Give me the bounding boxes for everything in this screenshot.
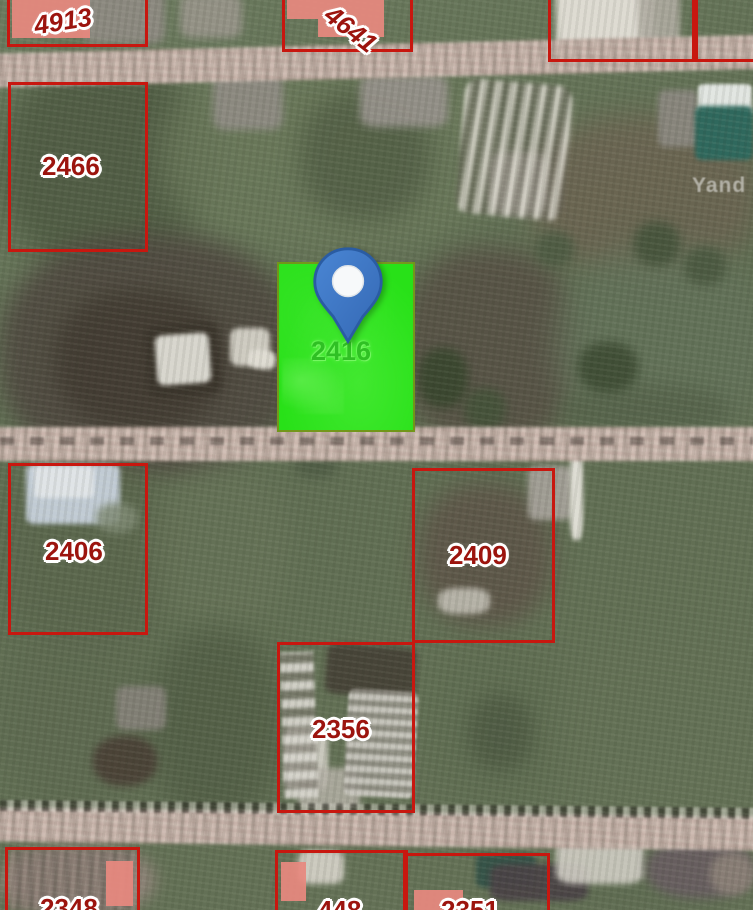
terrain-blob bbox=[150, 465, 290, 630]
parcel-label-2351: 2351 bbox=[441, 897, 499, 910]
terrain-blob bbox=[116, 686, 166, 730]
terrain-blob bbox=[180, 0, 242, 38]
terrain-blob bbox=[418, 348, 468, 408]
parcel-label-448: 448 bbox=[318, 897, 361, 910]
terrain-blob bbox=[154, 332, 211, 386]
terrain-blob bbox=[578, 342, 638, 392]
parcel-label-2466: 2466 bbox=[42, 153, 100, 179]
parcel-outline-top-right-2[interactable] bbox=[695, 0, 753, 62]
terrain-blob bbox=[710, 853, 753, 895]
parcel-label-2406: 2406 bbox=[45, 538, 103, 564]
terrain-blob bbox=[148, 628, 283, 823]
terrain-blob bbox=[93, 736, 157, 786]
terrain-blob bbox=[634, 222, 680, 266]
parcel-label-2348: 2348 bbox=[40, 895, 98, 910]
satellite-map[interactable]: Yand 49134641246624062409235623484482351… bbox=[0, 0, 753, 910]
location-pin-icon[interactable] bbox=[312, 247, 384, 344]
terrain-blob bbox=[658, 90, 698, 147]
highlight-scribble bbox=[282, 358, 344, 414]
parcel-label-2356: 2356 bbox=[312, 716, 370, 742]
parcel-fill-2348 bbox=[106, 861, 133, 906]
road-middle-tracks bbox=[0, 437, 753, 445]
terrain-blob bbox=[684, 247, 726, 285]
parcel-label-2409: 2409 bbox=[449, 542, 507, 568]
shed-cluster bbox=[454, 78, 573, 222]
terrain-blob bbox=[695, 106, 753, 160]
terrain-blob bbox=[360, 75, 448, 127]
parcel-fill-448 bbox=[281, 862, 306, 901]
terrain-blob bbox=[570, 450, 583, 540]
terrain-blob bbox=[464, 388, 506, 430]
parcel-outline-top-right[interactable] bbox=[548, 0, 695, 62]
terrain-blob bbox=[536, 232, 574, 266]
map-watermark: Yand bbox=[692, 174, 746, 198]
terrain-blob bbox=[468, 695, 533, 770]
terrain-blob bbox=[555, 635, 753, 820]
